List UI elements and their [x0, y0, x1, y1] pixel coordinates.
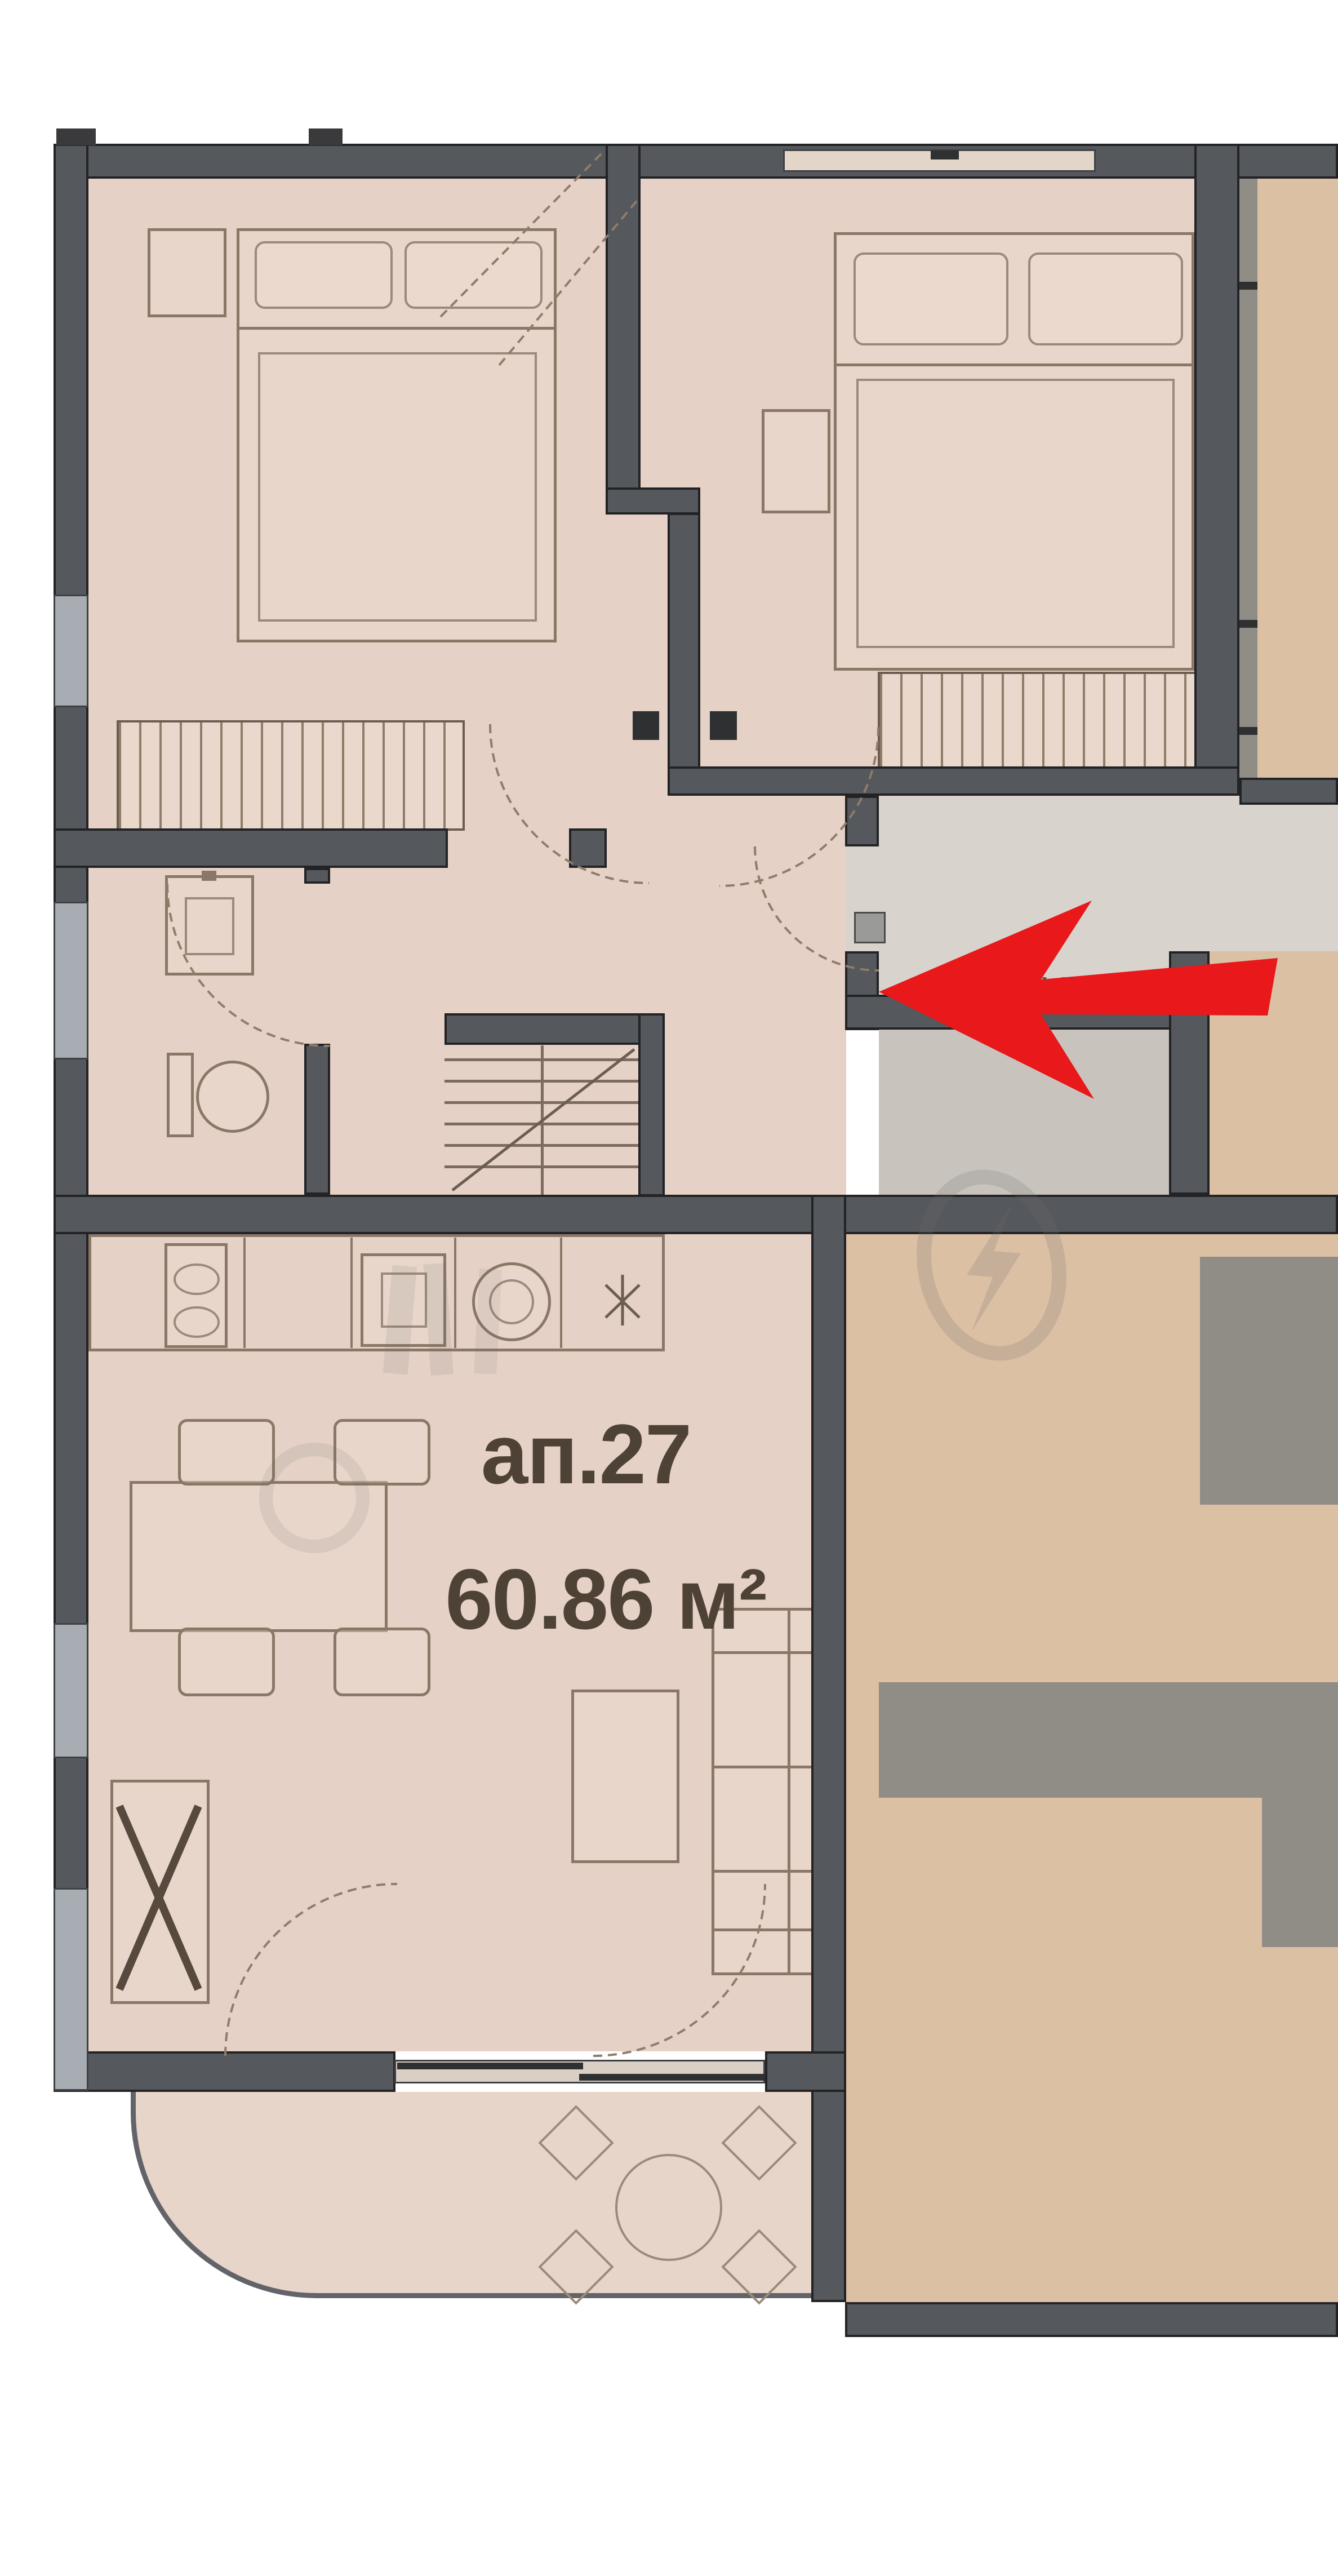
sofa-arm-line	[714, 1651, 811, 1654]
drying-rack	[110, 1780, 210, 2004]
window-left-living2	[54, 1888, 88, 2091]
counter-divider	[243, 1238, 246, 1348]
wall-stairs-top	[444, 1013, 665, 1045]
counter-divider	[350, 1238, 353, 1348]
wall-living-right	[811, 1195, 846, 2302]
counter-divider	[454, 1238, 456, 1348]
bathroom-sink-basin	[185, 897, 234, 955]
wall-stairs-right	[638, 1013, 665, 1196]
wall-kitchen	[54, 1195, 1338, 1234]
pillow	[255, 241, 393, 309]
neighbor-furniture-band	[879, 1682, 1338, 1798]
wall-neighbor-bottom	[845, 2302, 1338, 2337]
sliding-door-panel	[579, 2074, 765, 2081]
wall-neighbor-vertical	[1169, 951, 1210, 1195]
window-mullion	[931, 150, 959, 159]
entry-hall-floor	[665, 796, 846, 1195]
pillow	[854, 252, 1008, 345]
wall-bathroom-right	[304, 1044, 330, 1195]
wall-entry-stub-top	[845, 796, 879, 846]
neighbor-furniture-column	[1262, 1798, 1338, 1947]
nightstand-1	[148, 228, 226, 317]
wall-bathroom-stub-top	[304, 868, 330, 884]
bed-2-blanket	[856, 379, 1175, 648]
neighbor-door-tick	[1239, 282, 1257, 290]
wardrobe-2	[878, 672, 1223, 769]
neighbor-furniture-block	[1200, 1257, 1338, 1505]
pillow	[404, 241, 543, 309]
sink-faucet	[202, 871, 216, 881]
stair-stringer	[541, 1045, 544, 1195]
balcony-table	[615, 2154, 722, 2261]
bed-1-blanket	[258, 352, 537, 622]
pillow	[1028, 252, 1183, 345]
neighbor-door-tick	[1239, 620, 1257, 628]
entry-door-block	[854, 912, 886, 943]
wall-corridor-top	[1239, 778, 1338, 805]
sofa-arm-line	[714, 1928, 811, 1931]
wall-corridor-bottom	[845, 995, 1183, 1030]
dining-table	[130, 1481, 388, 1632]
dining-chair	[178, 1419, 275, 1486]
wall-bedroom1-bottom	[54, 828, 448, 868]
unit-number-label: ап.27	[417, 1412, 755, 1496]
toilet-tank	[167, 1053, 194, 1137]
wall-bedroom1-door-jamb	[569, 828, 607, 868]
wall-hallway	[668, 513, 700, 796]
wall-top	[54, 144, 1338, 179]
wardrobe-1	[117, 720, 465, 831]
stove-burner	[174, 1306, 220, 1338]
counter-divider	[560, 1238, 562, 1348]
floor-plan: ап.27 60.86 м²	[0, 0, 1338, 2576]
window-left-bathroom	[54, 902, 88, 1059]
sofa-back-line	[788, 1611, 790, 1972]
bed-1-headboard-line	[239, 327, 554, 330]
dining-chair	[334, 1419, 430, 1486]
wall-between-bedrooms	[606, 144, 641, 513]
wall-bedroom2-bottom	[668, 766, 1239, 796]
nightstand-2	[762, 409, 830, 513]
door-jamb-block	[633, 711, 659, 740]
unit-area-label: 60.86 м²	[352, 1557, 859, 1642]
sliding-door-panel	[397, 2063, 583, 2069]
window-left-bedroom1	[54, 595, 88, 707]
wall-bottom-left	[54, 2051, 395, 2092]
wall-vent-stub	[309, 128, 343, 145]
dining-chair	[178, 1628, 275, 1696]
building-core-floor	[879, 1030, 1169, 1195]
kitchen-sink-basin	[381, 1273, 427, 1328]
door-jamb-block	[710, 711, 737, 740]
wall-right-bedroom2	[1194, 144, 1239, 792]
wall-vent-stub	[56, 128, 96, 145]
sofa	[712, 1608, 814, 1975]
neighbor-unit-mid-floor	[1210, 951, 1338, 1195]
neighbor-door-tick	[1239, 727, 1257, 735]
bed-2-headboard-line	[836, 363, 1192, 366]
window-left-living	[54, 1623, 88, 1758]
sofa-cushion-line	[714, 1870, 811, 1873]
wall-jog	[606, 487, 700, 515]
sofa-cushion-line	[714, 1766, 811, 1768]
stove-burner	[174, 1263, 220, 1295]
wall-bottom-right	[765, 2051, 846, 2092]
wall-left	[54, 144, 88, 2091]
neighbor-wardrobe-strip	[1239, 179, 1257, 778]
toilet-bowl	[196, 1061, 269, 1133]
round-basin-inner	[489, 1279, 534, 1324]
coffee-table	[571, 1690, 679, 1863]
